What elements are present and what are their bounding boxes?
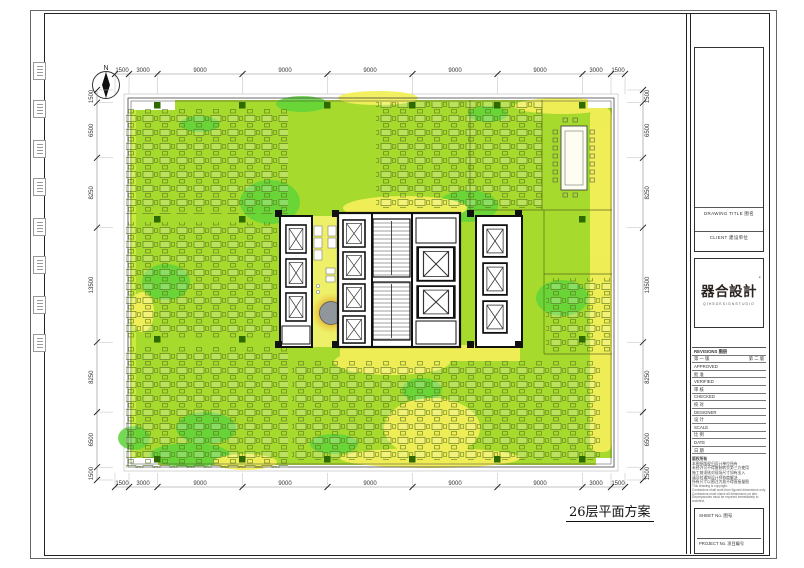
dim-label: 1500 xyxy=(645,89,651,103)
dim-label: 9000 xyxy=(363,481,377,487)
dim-label: 9000 xyxy=(278,481,292,487)
dim-label: 13500 xyxy=(645,276,651,293)
dim-label: 1500 xyxy=(89,89,95,103)
dim-label: 3000 xyxy=(136,481,150,487)
dim-label: 9000 xyxy=(193,68,207,74)
dim-label: 1500 xyxy=(645,466,651,480)
revisions-header: REVISIONS 图册 xyxy=(692,347,766,356)
dim-label: 1500 xyxy=(115,481,129,487)
dim-label: 1500 xyxy=(611,68,625,74)
dim-label: 3000 xyxy=(589,481,603,487)
dim-label: 9000 xyxy=(533,481,547,487)
dim-label: 9000 xyxy=(448,481,462,487)
drawing-title-label: DRAWING TITLE 图名 xyxy=(695,207,763,231)
table-row: 日 期 xyxy=(692,447,766,455)
table-row: VERIFIED xyxy=(692,378,766,386)
dim-label: 1500 xyxy=(611,481,625,487)
table-row: DESIGNER xyxy=(692,409,766,417)
table-row: 审 核 xyxy=(692,386,766,394)
logo-mark: ' xyxy=(759,277,761,283)
dim-label: 1500 xyxy=(115,68,129,74)
dim-label: 13500 xyxy=(89,276,95,293)
table-row: 批 准 xyxy=(692,371,766,379)
titleblock-table: REVISIONS 图册 第 一 版 第 二 版 APPROVED 批 准 VE… xyxy=(692,347,766,454)
table-row: 比 例 xyxy=(692,432,766,440)
table-row: APPROVED xyxy=(692,363,766,371)
dim-label: 6500 xyxy=(645,432,651,446)
table-row: DATE xyxy=(692,439,766,447)
project-no-label: PROJECT No. 项目编号 xyxy=(699,541,744,547)
dim-label: 8250 xyxy=(89,370,95,384)
titleblock-notes: 版权所有 本图纸版权归设计单位所有 未经许可不得复制转交第三方使用 施工前须核对… xyxy=(692,457,766,504)
dim-label: 1500 xyxy=(89,466,95,480)
table-row: CHECKED xyxy=(692,394,766,402)
dim-label: 8250 xyxy=(645,185,651,199)
floor-plan-drawing: N 1500 3000 9000 9000 9000 9000 9000 xyxy=(40,30,690,550)
titleblock-info-box: DRAWING TITLE 图名 CLIENT 建设单位 xyxy=(694,47,764,252)
dim-label: 9000 xyxy=(448,68,462,74)
dim-label: 3000 xyxy=(589,68,603,74)
dim-label: 9000 xyxy=(363,68,377,74)
north-label: N xyxy=(103,65,108,72)
dim-label: 9000 xyxy=(193,481,207,487)
table-row: 设 计 xyxy=(692,416,766,424)
client-label: CLIENT 建设单位 xyxy=(695,231,763,251)
dim-label: 3000 xyxy=(136,68,150,74)
table-row: SCALE xyxy=(692,424,766,432)
note-line: Discrepancies must be reported immediate… xyxy=(692,496,766,504)
dim-label: 6500 xyxy=(89,432,95,446)
drawing-title: 26层平面方案 xyxy=(566,501,654,522)
dim-label: 8250 xyxy=(645,370,651,384)
dim-label: 6500 xyxy=(89,123,95,137)
divider xyxy=(697,538,761,539)
dim-label: 9000 xyxy=(533,68,547,74)
sheet-number-box: SHEET No. 图号 PROJECT No. 项目编号 xyxy=(694,508,764,554)
dim-label: 8250 xyxy=(89,185,95,199)
drawing-sheet: N 1500 3000 9000 9000 9000 9000 9000 xyxy=(0,0,804,568)
sheet-no-label: SHEET No. 图号 xyxy=(699,513,732,519)
building-core xyxy=(275,210,522,348)
dim-label: 9000 xyxy=(278,68,292,74)
logo-subtext: QIHEDESIGNSTUDIO xyxy=(703,302,755,306)
logo-box: 器合設計' QIHEDESIGNSTUDIO xyxy=(694,258,764,328)
revision-row: 第 一 版 第 二 版 xyxy=(692,356,766,364)
table-row: 校 对 xyxy=(692,401,766,409)
dim-label: 6500 xyxy=(645,123,651,137)
company-logo: 器合設計' xyxy=(701,280,757,300)
titleblock-divider-inner xyxy=(690,13,691,554)
